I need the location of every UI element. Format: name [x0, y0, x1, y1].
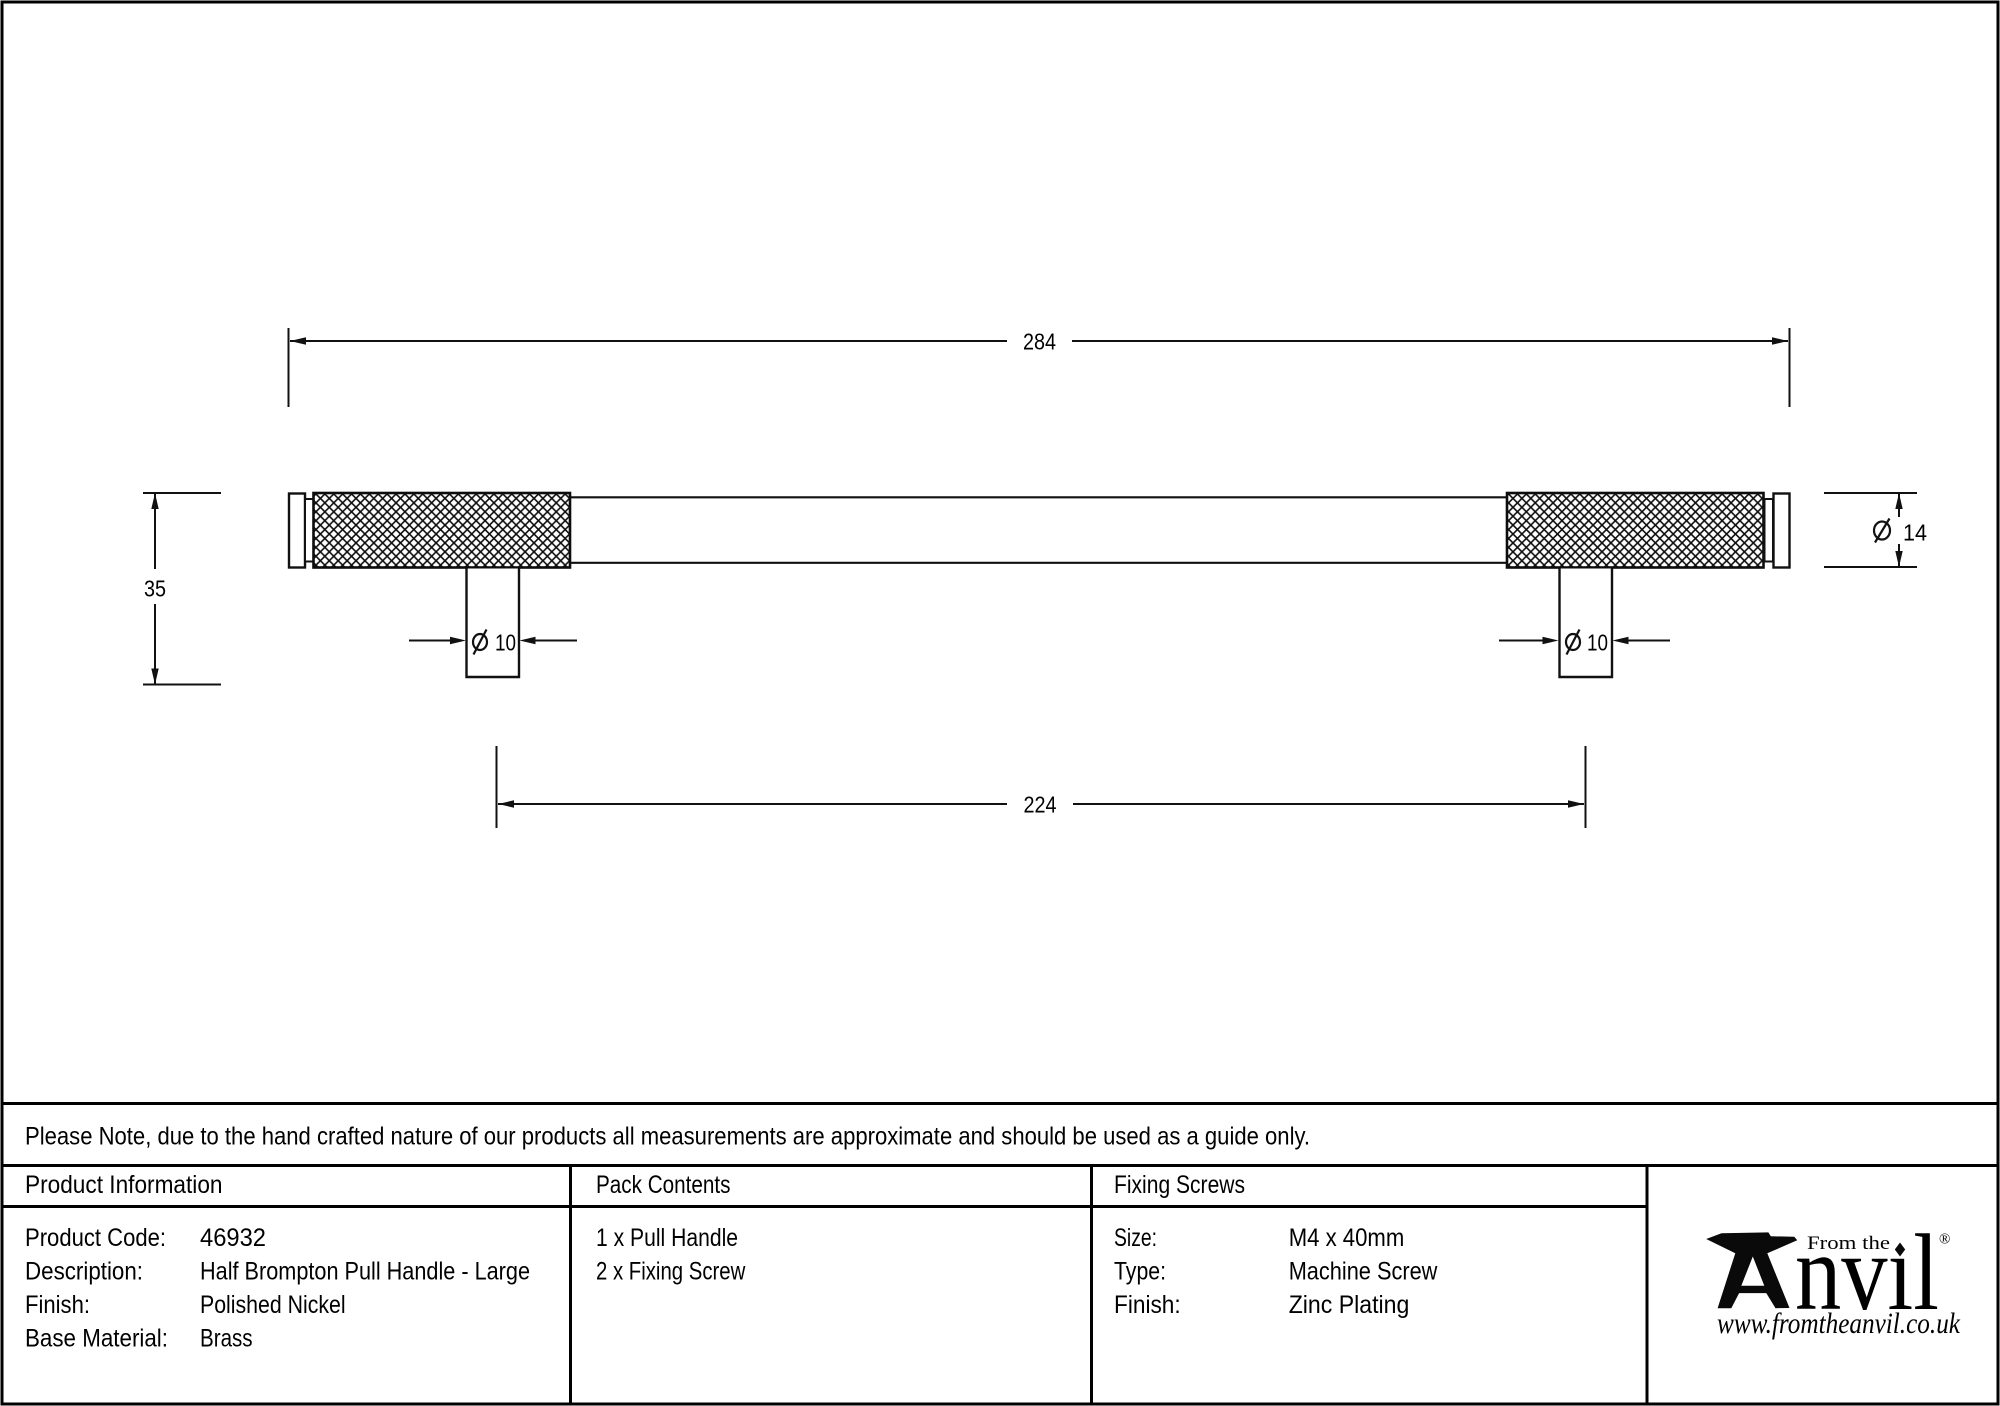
svg-text:35: 35 [144, 576, 166, 602]
svg-text:Description:: Description: [25, 1258, 143, 1286]
svg-text:M4 x 40mm: M4 x 40mm [1289, 1224, 1405, 1252]
svg-text:Type:: Type: [1114, 1258, 1166, 1286]
svg-text:Pack Contents: Pack Contents [596, 1171, 731, 1199]
svg-text:10: 10 [495, 630, 516, 656]
svg-text:284: 284 [1023, 329, 1056, 355]
svg-text:www.fromtheanvil.co.uk: www.fromtheanvil.co.uk [1717, 1307, 1961, 1340]
svg-text:224: 224 [1024, 792, 1057, 818]
svg-text:Size:: Size: [1114, 1224, 1157, 1252]
svg-text:Brass: Brass [200, 1325, 253, 1353]
svg-text:Base Material:: Base Material: [25, 1325, 168, 1353]
svg-text:46932: 46932 [200, 1224, 266, 1252]
svg-text:Please Note, due to the hand c: Please Note, due to the hand crafted nat… [25, 1123, 1310, 1151]
svg-text:Product Code:: Product Code: [25, 1224, 166, 1252]
svg-text:14: 14 [1903, 520, 1927, 546]
svg-text:Half Brompton Pull Handle - La: Half Brompton Pull Handle - Large [200, 1258, 530, 1286]
svg-text:®: ® [1939, 1232, 1950, 1248]
svg-text:Fixing Screws: Fixing Screws [1114, 1171, 1245, 1199]
svg-text:1 x Pull Handle: 1 x Pull Handle [596, 1224, 738, 1252]
svg-text:Product Information: Product Information [25, 1171, 223, 1199]
svg-text:Machine Screw: Machine Screw [1289, 1258, 1439, 1286]
svg-text:Finish:: Finish: [25, 1291, 90, 1319]
svg-text:Polished Nickel: Polished Nickel [200, 1291, 346, 1319]
svg-text:2 x Fixing Screw: 2 x Fixing Screw [596, 1258, 746, 1286]
svg-text:Finish:: Finish: [1114, 1291, 1181, 1319]
svg-text:Zinc Plating: Zinc Plating [1289, 1291, 1410, 1319]
svg-text:10: 10 [1587, 630, 1608, 656]
